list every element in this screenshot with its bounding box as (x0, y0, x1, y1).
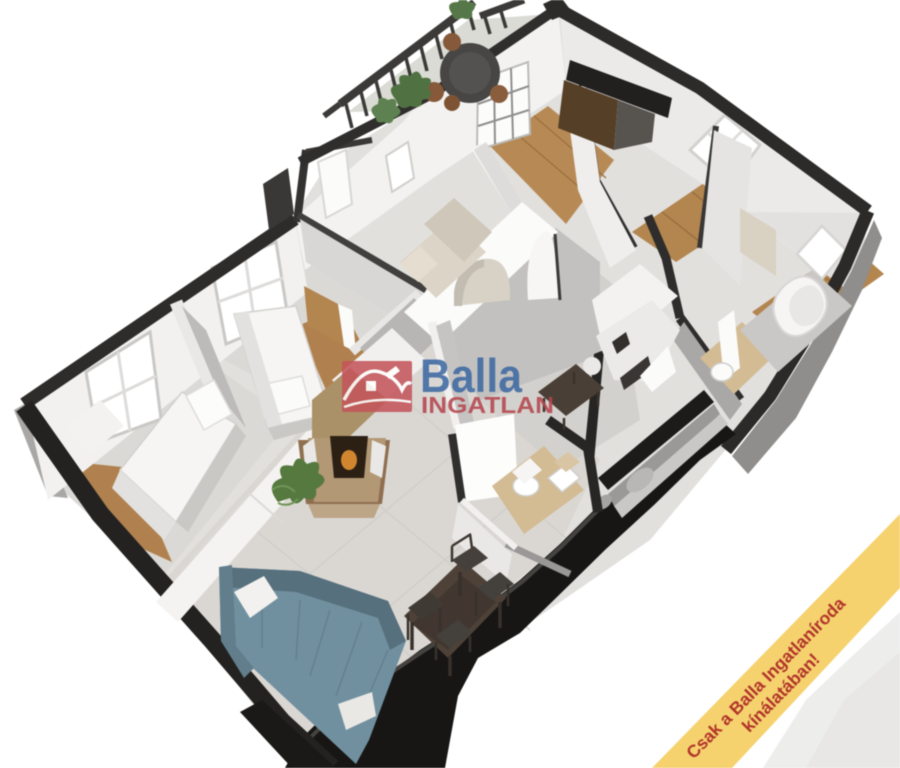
svg-text:INGATLAN: INGATLAN (421, 392, 554, 418)
